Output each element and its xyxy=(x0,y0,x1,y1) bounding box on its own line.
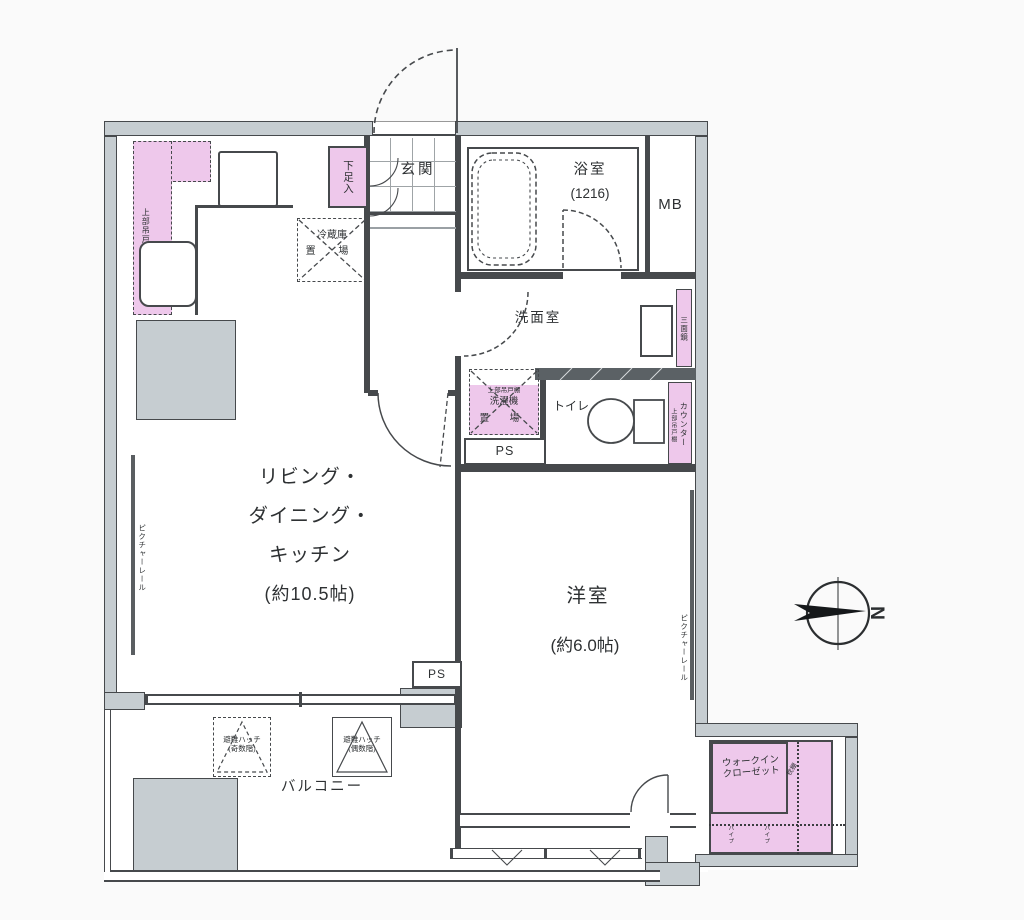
wic-pipe-label-2: パイプ xyxy=(763,817,769,853)
wall-hall-stub-left xyxy=(368,390,378,396)
ldk-label-line2: ダイニング・ xyxy=(195,497,425,536)
toilet-counter-label: カウンター xyxy=(679,386,688,462)
compass-needle xyxy=(794,604,866,621)
wic-wall-right xyxy=(845,737,858,867)
ldk-window-tick-left xyxy=(145,694,148,705)
shoe-cabinet-label: 下足入 xyxy=(342,160,354,195)
kitchen-column xyxy=(136,320,236,420)
refrigerator-label-line2: 置 場 xyxy=(297,246,367,258)
wall-bath-bottom-left xyxy=(456,272,563,279)
western-window-tick-mid xyxy=(544,848,547,859)
wall-top-left xyxy=(104,121,373,136)
picture-rail-left xyxy=(131,455,135,655)
bathroom-label: 浴室 xyxy=(545,162,635,179)
picture-rail-right-label: ピクチャーレール xyxy=(679,588,688,708)
entrance-opening xyxy=(373,121,455,136)
wall-right xyxy=(695,136,708,736)
shoe-cabinet: 下足入 xyxy=(328,146,368,208)
balcony-left-edge xyxy=(104,710,111,872)
stove xyxy=(218,151,278,207)
wall-toilet-top-band xyxy=(535,368,696,380)
counter-edge-h xyxy=(195,205,293,208)
ps-label-1: PS xyxy=(496,444,515,458)
bathroom-size: (1216) xyxy=(541,186,639,202)
genkan-step-line xyxy=(370,212,456,215)
ps-box-1: PS xyxy=(464,438,546,465)
compass-north-label: N xyxy=(866,606,887,620)
meter-box-label: MB xyxy=(645,196,696,213)
wic-wall-bottom xyxy=(695,854,858,867)
refrigerator-label: 冷蔵庫 置 場 xyxy=(297,230,367,257)
genkan-label: 玄関 xyxy=(376,162,460,179)
vanity xyxy=(640,305,673,357)
ps-label-2: PS xyxy=(428,668,446,682)
western-bottom-wall xyxy=(460,813,630,828)
picture-rail-right xyxy=(690,490,694,700)
picture-rail-left-label: ピクチャーレール xyxy=(137,498,146,618)
floor-plan: 下足入 玄関 上部吊戸棚 冷蔵庫 置 場 浴室 (1216) MB 洗面室 三面… xyxy=(0,0,1024,920)
ldk-label-line4: (約10.5帖) xyxy=(195,575,425,614)
balcony-pillar xyxy=(133,778,238,882)
wic-hanger-pipe-v xyxy=(797,742,799,854)
western-room-label: 洋室 xyxy=(528,585,648,607)
hatch-even-line2: (偶数階) xyxy=(330,745,394,754)
wall-balcony-divider xyxy=(455,692,461,852)
western-bottom-wall-stub xyxy=(670,813,696,828)
wall-top-right xyxy=(455,121,708,136)
western-window-tick-left xyxy=(450,848,453,859)
ldk-label-line1: リビング・ xyxy=(195,458,425,497)
wall-bath-bottom-right xyxy=(621,272,696,279)
washer-label-line2: 置 場 xyxy=(469,414,539,425)
hatch-even-label: 避難ハッチ (偶数階) xyxy=(330,736,394,753)
washer-upper-cabinet: 上部吊戸棚 xyxy=(469,387,539,394)
wall-hall-stub-right xyxy=(448,390,461,396)
mirror-label: 三面鏡 xyxy=(679,296,688,362)
ldk-window-tick-mid xyxy=(299,692,302,707)
wall-hall-right-lower xyxy=(455,356,461,698)
balcony-label: バルコニー xyxy=(252,779,392,796)
wic-pipe-label-1: パイプ xyxy=(727,817,733,853)
washer-label-line1: 洗濯機 xyxy=(469,397,539,408)
toilet-label: トイレ xyxy=(548,400,594,414)
wic-wall-top xyxy=(695,723,858,737)
western-room-size: (約6.0帖) xyxy=(505,636,665,656)
washroom-label: 洗面室 xyxy=(478,310,598,326)
ps-box-2: PS xyxy=(412,661,462,688)
refrigerator-label-line1: 冷蔵庫 xyxy=(297,230,367,242)
kitchen-sink xyxy=(139,241,197,307)
genkan-step-line2 xyxy=(370,227,456,229)
wall-western-top xyxy=(456,464,696,472)
toilet-counter-cabinet-label: 上部吊戸棚 xyxy=(669,392,676,458)
ldk-label-line3: キッチン xyxy=(195,536,425,575)
ldk-window-tick-right xyxy=(454,694,457,705)
western-window-tick-right xyxy=(638,848,641,859)
balcony-slab-edge xyxy=(104,870,660,882)
hatch-odd-label: 避難ハッチ (奇数階) xyxy=(211,736,273,753)
compass: N xyxy=(794,577,887,650)
balcony-wall-stub xyxy=(104,692,145,710)
ldk-label: リビング・ ダイニング・ キッチン (約10.5帖) xyxy=(195,458,425,614)
wall-left xyxy=(104,136,117,698)
hatch-odd-line2: (奇数階) xyxy=(211,745,273,754)
counter-edge-v xyxy=(195,205,198,315)
